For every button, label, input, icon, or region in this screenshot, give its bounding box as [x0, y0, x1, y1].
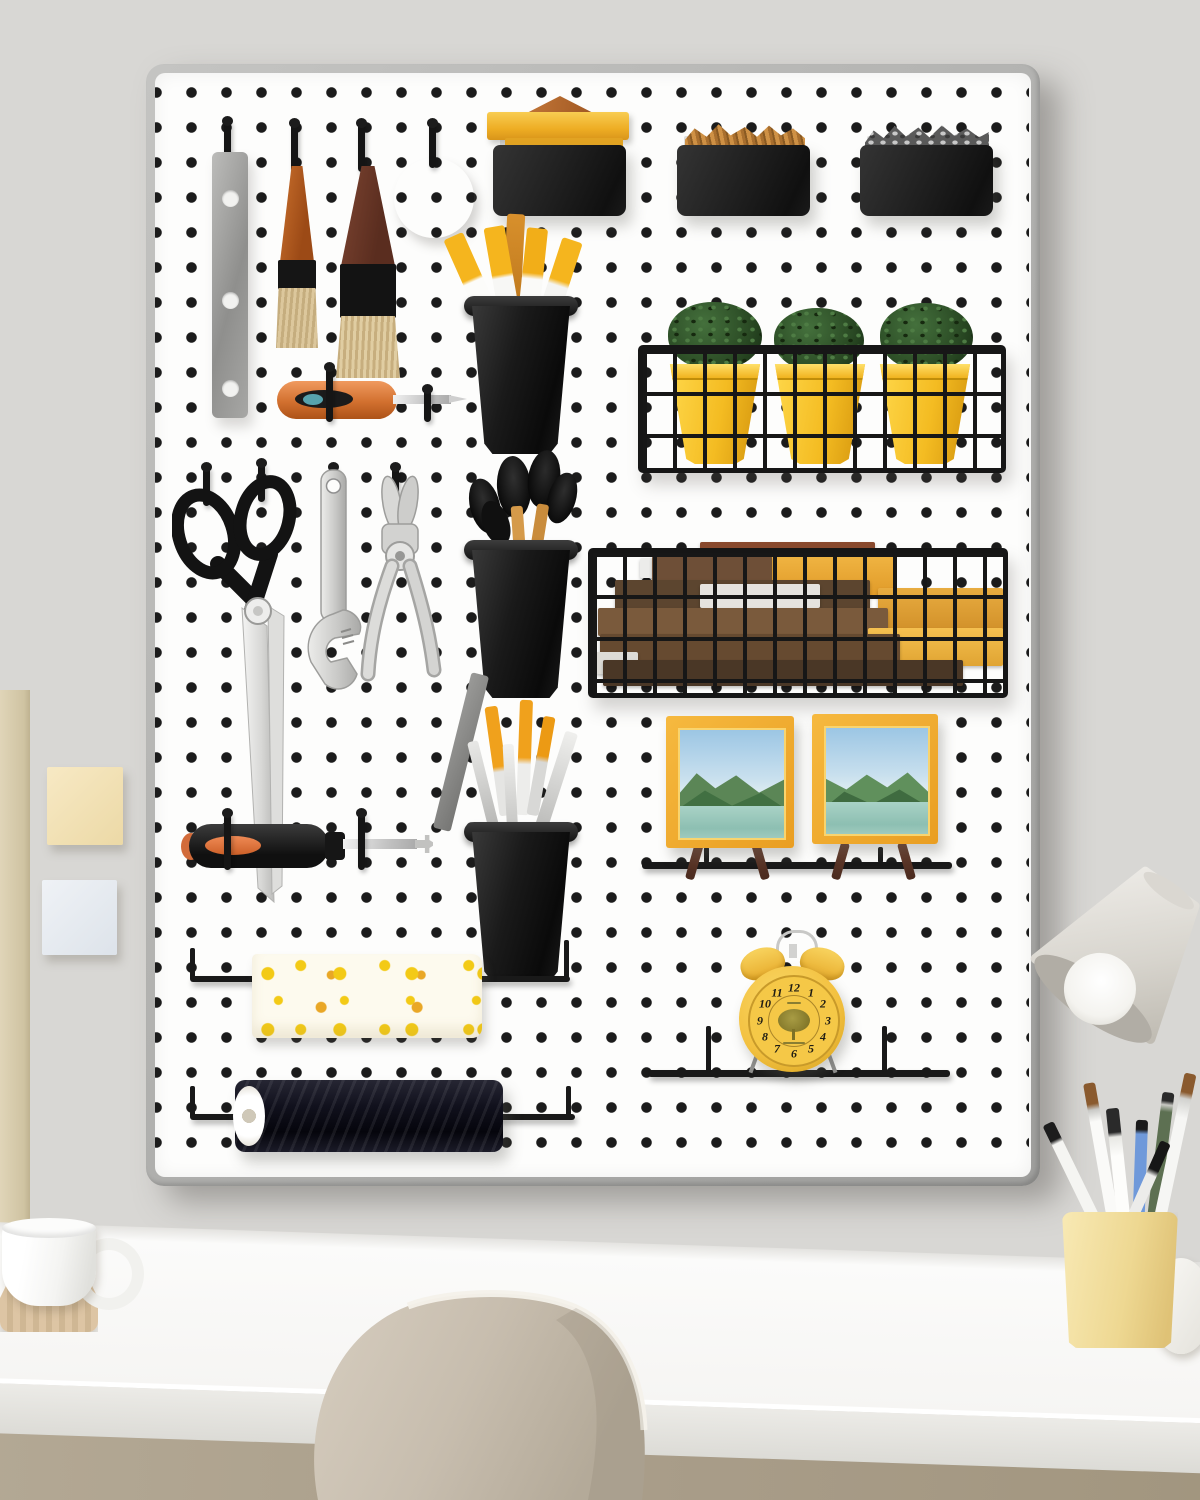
ruler-hole: [222, 380, 239, 397]
clock-face: 12 1 2 3 4 5 6 7 8 9 10 11: [748, 975, 840, 1067]
mug-rim: [2, 1218, 96, 1238]
wall-side-panel: [0, 690, 30, 1246]
lake-water: [826, 802, 928, 834]
clock-numeral: 9: [757, 1014, 763, 1029]
tape-roll: [394, 158, 474, 238]
brush-ferrule: [340, 264, 396, 318]
brush-bristles: [336, 316, 400, 378]
screwdriver-shaft: [343, 839, 417, 849]
brush-handle: [341, 166, 395, 266]
rail-hook: [882, 1026, 887, 1072]
pencil-cup: [1062, 1212, 1178, 1348]
clock-numeral: 1: [808, 986, 814, 1001]
thread-spool: [235, 1080, 503, 1152]
landscape-photo: [824, 726, 930, 836]
screwdriver-phillips-tip: [415, 835, 433, 853]
paint-brush-large: [336, 166, 400, 378]
bin-screws: [860, 145, 993, 216]
clock-numeral: 6: [791, 1047, 797, 1062]
brush-bristles: [276, 288, 318, 348]
screwdriver-shaft: [393, 395, 451, 404]
brush-ferrule: [278, 260, 316, 290]
alarm-clock: 12 1 2 3 4 5 6 7 8 9 10 11: [736, 926, 850, 1076]
cup-chalk: [470, 306, 572, 454]
peg-hook: [358, 812, 365, 870]
screwdriver-inlay: [205, 836, 261, 855]
peg-hook: [291, 122, 298, 172]
rail-hook: [704, 847, 709, 863]
clock-numeral: 5: [808, 1042, 814, 1057]
white-mug: [2, 1222, 96, 1306]
bin-wooden-sticks: [677, 145, 810, 216]
screwdriver-orange: [277, 376, 469, 424]
rail-hook: [706, 1026, 711, 1072]
clock-stem: [789, 944, 797, 958]
yellow-box-stack-top: [487, 112, 629, 140]
metal-ruler: [212, 152, 248, 418]
ruler-hole: [222, 190, 239, 207]
landscape-photo: [678, 728, 786, 840]
rod-bracket: [564, 940, 569, 980]
pliers: [356, 462, 442, 694]
paint-brush-small: [276, 166, 318, 348]
picture-frame-left: [666, 716, 794, 848]
wire-basket-books: [588, 548, 1008, 698]
chair: [288, 1280, 672, 1500]
ruler-hole: [222, 292, 239, 309]
clock-numeral: 12: [788, 981, 800, 996]
screwdriver-black: [181, 820, 433, 872]
screwdriver-inlay-dot: [303, 394, 323, 405]
peg-hook: [224, 812, 231, 870]
clock-face-mark: [787, 1002, 801, 1004]
brush-handle: [280, 166, 314, 262]
peg-hook: [326, 366, 333, 422]
clock-numeral: 10: [759, 997, 771, 1012]
screwdriver-neck: [325, 832, 345, 860]
peg-hook: [424, 388, 431, 422]
desk-lamp: [1030, 858, 1200, 1073]
cup-pens: [470, 832, 572, 982]
clock-numeral: 8: [762, 1030, 768, 1045]
scene-room: 12 1 2 3 4 5 6 7 8 9 10 11: [0, 0, 1200, 1500]
sticky-note-yellow: [47, 767, 123, 845]
bin-yellow-boxes: [493, 145, 626, 216]
clock-face-mark: [783, 1042, 805, 1044]
screwdriver-tip: [449, 392, 467, 406]
clock-numeral: 7: [774, 1042, 780, 1057]
clock-numeral: 4: [820, 1030, 826, 1045]
wire-basket-plants: [638, 345, 1006, 473]
rail-hook: [878, 847, 883, 863]
picture-frame-right: [812, 714, 938, 844]
lake-water: [680, 806, 784, 838]
clock-tree-trunk: [792, 1029, 795, 1040]
fabric-roll: [252, 954, 482, 1038]
peg-hook: [358, 122, 365, 172]
thread-spool-core: [233, 1086, 265, 1146]
clock-numeral: 3: [825, 1014, 831, 1029]
sticky-note-blue: [42, 880, 117, 955]
clock-numeral: 2: [820, 997, 826, 1012]
